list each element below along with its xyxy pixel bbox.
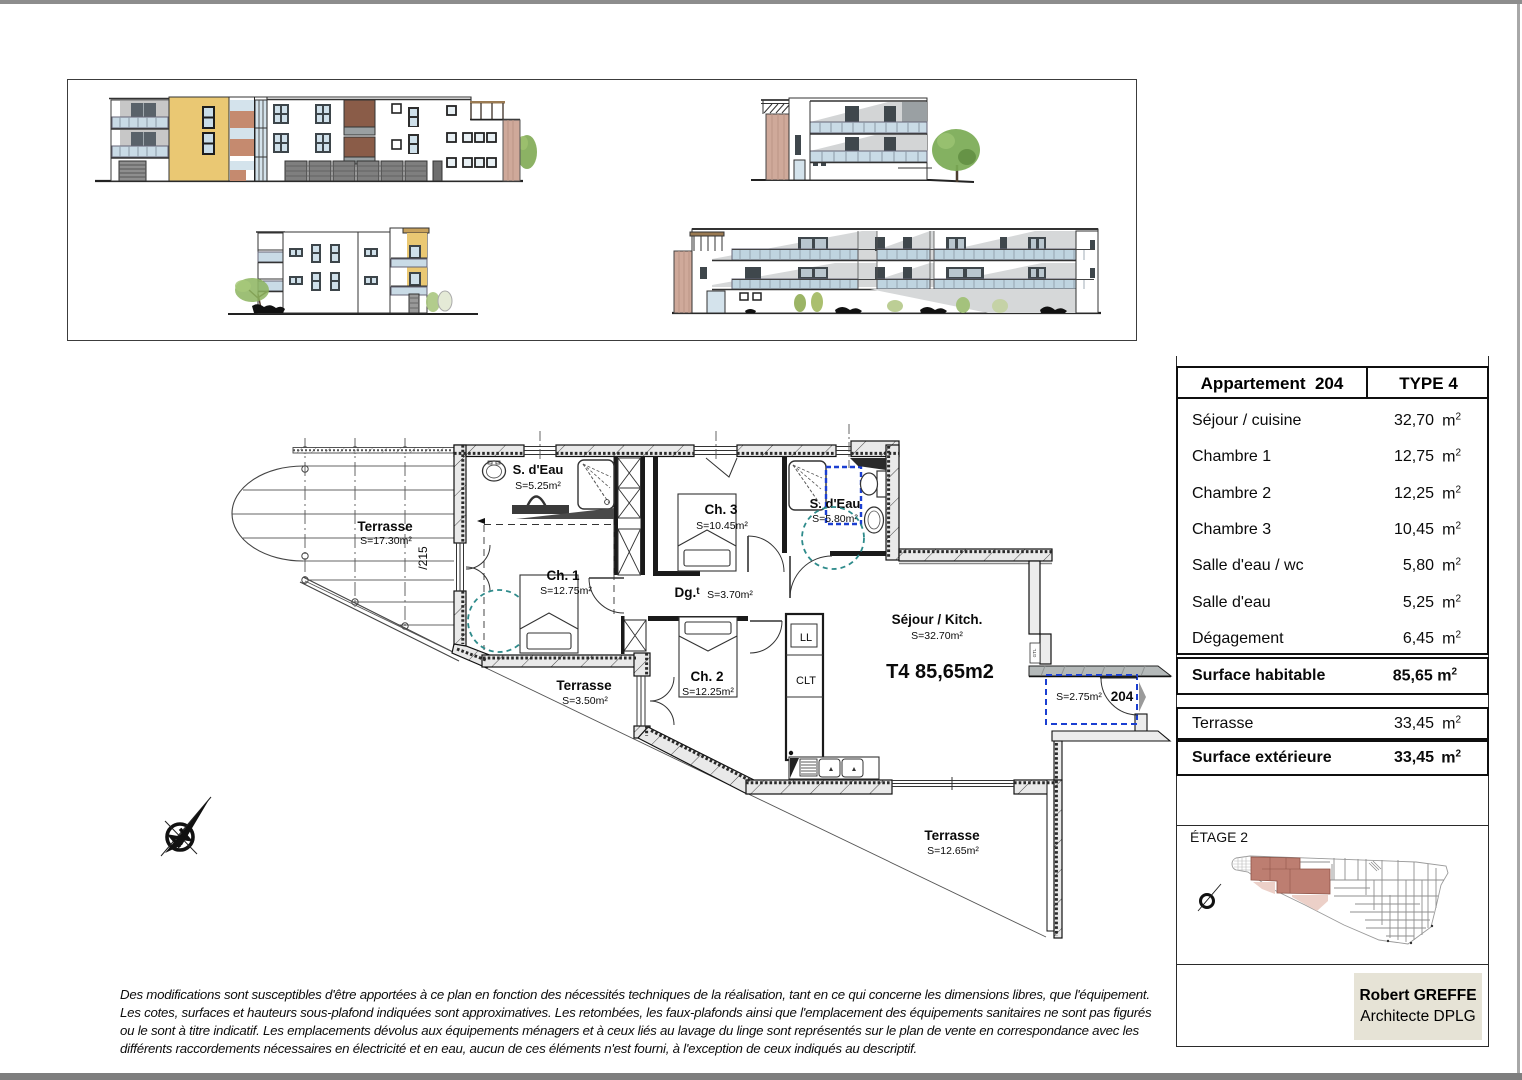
svg-text:S=2.75m²: S=2.75m² bbox=[1056, 691, 1102, 703]
svg-text:S. d'Eau: S. d'Eau bbox=[513, 462, 564, 477]
svg-text:T4 85,65m2: T4 85,65m2 bbox=[886, 661, 994, 683]
svg-text:S=32.70m²: S=32.70m² bbox=[911, 630, 963, 642]
svg-text:S=12.25m²: S=12.25m² bbox=[682, 686, 734, 698]
svg-text:Terrasse: Terrasse bbox=[924, 828, 980, 843]
svg-text:S=10.45m²: S=10.45m² bbox=[696, 520, 748, 532]
svg-text:204: 204 bbox=[1111, 689, 1134, 704]
svg-text:LL: LL bbox=[800, 632, 812, 644]
svg-text:S=12.75m²: S=12.75m² bbox=[540, 585, 592, 597]
svg-text:CLT: CLT bbox=[796, 675, 816, 687]
svg-text:S=5.25m²: S=5.25m² bbox=[515, 480, 561, 492]
svg-text:S=5.80m²: S=5.80m² bbox=[812, 513, 858, 525]
svg-text:Séjour / Kitch.: Séjour / Kitch. bbox=[892, 612, 983, 627]
svg-text:GTL: GTL bbox=[1032, 648, 1037, 657]
svg-text:/215: /215 bbox=[416, 546, 430, 570]
svg-text:Terrasse: Terrasse bbox=[357, 519, 413, 534]
svg-text:Dg.t: Dg.t bbox=[674, 585, 700, 600]
svg-text:Terrasse: Terrasse bbox=[556, 678, 612, 693]
svg-text:S=3.70m²: S=3.70m² bbox=[707, 589, 753, 601]
svg-text:S. d'Eau: S. d'Eau bbox=[810, 496, 861, 511]
svg-text:S=17.30m²: S=17.30m² bbox=[360, 535, 412, 547]
svg-text:Ch. 2: Ch. 2 bbox=[690, 669, 723, 684]
svg-text:Ch. 1: Ch. 1 bbox=[546, 568, 579, 583]
svg-text:S=12.65m²: S=12.65m² bbox=[927, 845, 979, 857]
svg-text:Ch. 3: Ch. 3 bbox=[704, 502, 737, 517]
svg-text:S=3.50m²: S=3.50m² bbox=[562, 695, 608, 707]
